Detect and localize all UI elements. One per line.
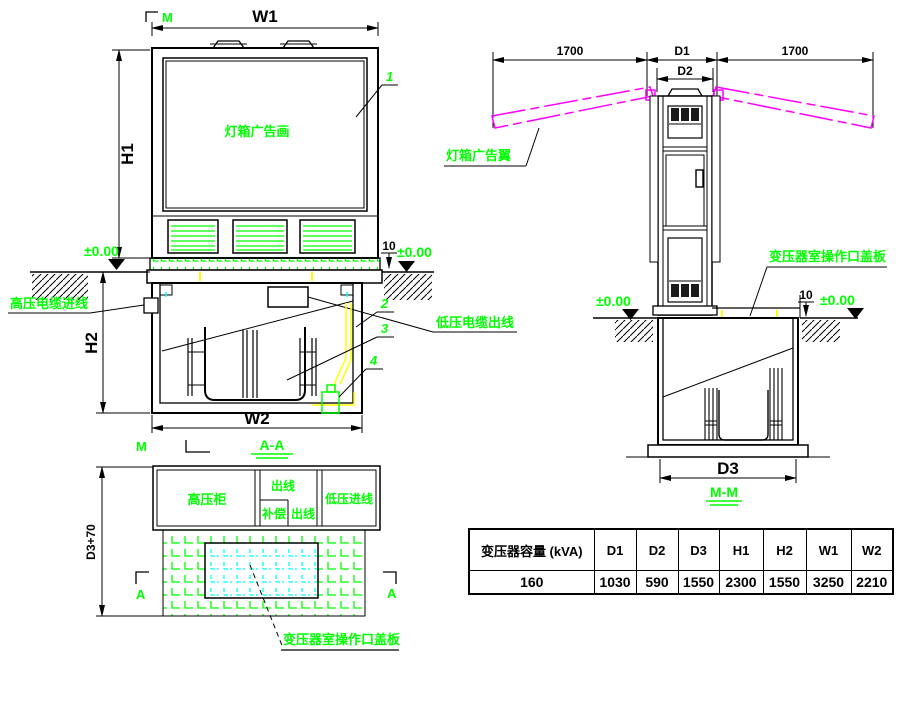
- col-d1: D1: [594, 529, 636, 571]
- compensation-label: 补偿: [261, 506, 286, 521]
- item-4-box: [322, 385, 339, 413]
- val-d2: 590: [636, 571, 678, 595]
- lv-outlet-box: [268, 287, 308, 307]
- plan-view: 高压柜 出线 补偿 出线 低压进线 D3+70 A A 变压器室操作口盖板: [84, 466, 401, 650]
- span-right-label: 1700: [782, 44, 809, 58]
- mm-level-left: ±0.00: [596, 293, 631, 309]
- mm-cover-label: 变压器室操作口盖板: [769, 249, 887, 264]
- d3-dim-label: D3: [717, 459, 739, 478]
- aa-section-mark: M: [136, 439, 147, 454]
- column-cabinet: [650, 89, 720, 315]
- level-triangle: [108, 259, 125, 270]
- outgoing-bottom-label: 出线: [291, 506, 315, 521]
- hv-cable-in-label: 高压电缆进线: [10, 296, 88, 311]
- val-d3: 1550: [678, 571, 719, 595]
- lv-incoming-label: 低压进线: [324, 491, 373, 506]
- transformer-front: [188, 327, 316, 400]
- mm-title: M-M: [710, 484, 738, 500]
- wing-leader: [526, 128, 539, 166]
- mm-vault-outer: [658, 318, 798, 445]
- val-h2: 1550: [763, 571, 806, 595]
- mm-level-right: ±0.00: [820, 292, 855, 308]
- earth-hatch-right: [802, 320, 840, 342]
- front-view: M W1 H1 灯箱广告画 1: [30, 7, 434, 300]
- drawing-sheet: M W1 H1 灯箱广告画 1: [0, 0, 905, 724]
- wing-label: 灯箱广告翼: [446, 148, 511, 163]
- mm-offset-10: 10: [799, 288, 813, 302]
- section-cut-mark: [186, 440, 210, 452]
- h2-dim-label: H2: [82, 332, 101, 354]
- w2-dim-label: W2: [244, 409, 270, 428]
- val-h1: 2300: [719, 571, 763, 595]
- d1-dim-label: D1: [674, 44, 690, 58]
- outgoing-top-label: 出线: [271, 478, 295, 493]
- plan-section-mark-left: A: [136, 587, 146, 602]
- h1-dim-label: H1: [118, 143, 137, 165]
- col-h1: H1: [719, 529, 763, 571]
- callout-4: 4: [369, 353, 378, 368]
- cad-drawing: M W1 H1 灯箱广告画 1: [0, 0, 905, 724]
- table-row: 160 1030 590 1550 2300 1550 3250 2210: [469, 571, 893, 595]
- plan-section-mark-right: A: [387, 586, 397, 601]
- val-w1: 3250: [806, 571, 851, 595]
- front-offset-10: 10: [382, 239, 396, 253]
- val-w2: 2210: [851, 571, 893, 595]
- section-cut-mark: [383, 572, 396, 584]
- table-header-row: 变压器容量 (kVA) D1 D2 D3 H1 H2 W1 W2: [469, 529, 893, 571]
- front-level-right: ±0.00: [397, 244, 432, 260]
- level-triangle: [398, 261, 415, 272]
- callout-3: 3: [381, 321, 389, 336]
- section-cut-mark: [136, 572, 149, 584]
- col-d2: D2: [636, 529, 678, 571]
- val-d1: 1030: [594, 571, 636, 595]
- mm-bottom-slab: [648, 445, 808, 457]
- w1-dim-label: W1: [252, 7, 278, 26]
- lv-leader: [308, 297, 433, 332]
- base-strip: [150, 258, 380, 270]
- operation-cover-plate: [205, 543, 318, 598]
- col-capacity: 变压器容量 (kVA): [469, 529, 594, 571]
- section-mm: 1700 D1 1700 D2 灯箱广告翼: [444, 44, 887, 505]
- callout-1: 1: [386, 69, 393, 84]
- col-h2: H2: [763, 529, 806, 571]
- hv-cable-box: [144, 298, 158, 313]
- transformer-end: [705, 368, 782, 440]
- section-aa: H2 高压电缆进线 低压电缆出线: [8, 270, 517, 458]
- earth-hatch-right: [384, 274, 432, 300]
- spec-table: 变压器容量 (kVA) D1 D2 D3 H1 H2 W1 W2 160 103…: [468, 528, 894, 595]
- front-level-left: ±0.00: [84, 243, 119, 259]
- hv-cabinet-label: 高压柜: [187, 492, 226, 507]
- lv-cable-yellow: [312, 303, 354, 405]
- lv-cable-out-label: 低压电缆出线: [435, 315, 514, 330]
- val-capacity: 160: [469, 571, 594, 595]
- aa-title: A-A: [260, 437, 285, 453]
- callout-2: 2: [380, 296, 389, 311]
- earth-hatch-left: [615, 320, 653, 342]
- ad-panel-label: 灯箱广告画: [224, 124, 289, 139]
- section-cut-mark: [146, 12, 158, 22]
- col-w2: W2: [851, 529, 893, 571]
- d3-70-dim-label: D3+70: [84, 524, 98, 560]
- plan-cover-label: 变压器室操作口盖板: [283, 632, 401, 647]
- col-w1: W1: [806, 529, 851, 571]
- vault-top-slab: [147, 270, 382, 283]
- span-left-label: 1700: [557, 44, 584, 58]
- front-section-mark-label: M: [162, 10, 173, 25]
- col-d3: D3: [678, 529, 719, 571]
- d2-dim-label: D2: [677, 64, 693, 78]
